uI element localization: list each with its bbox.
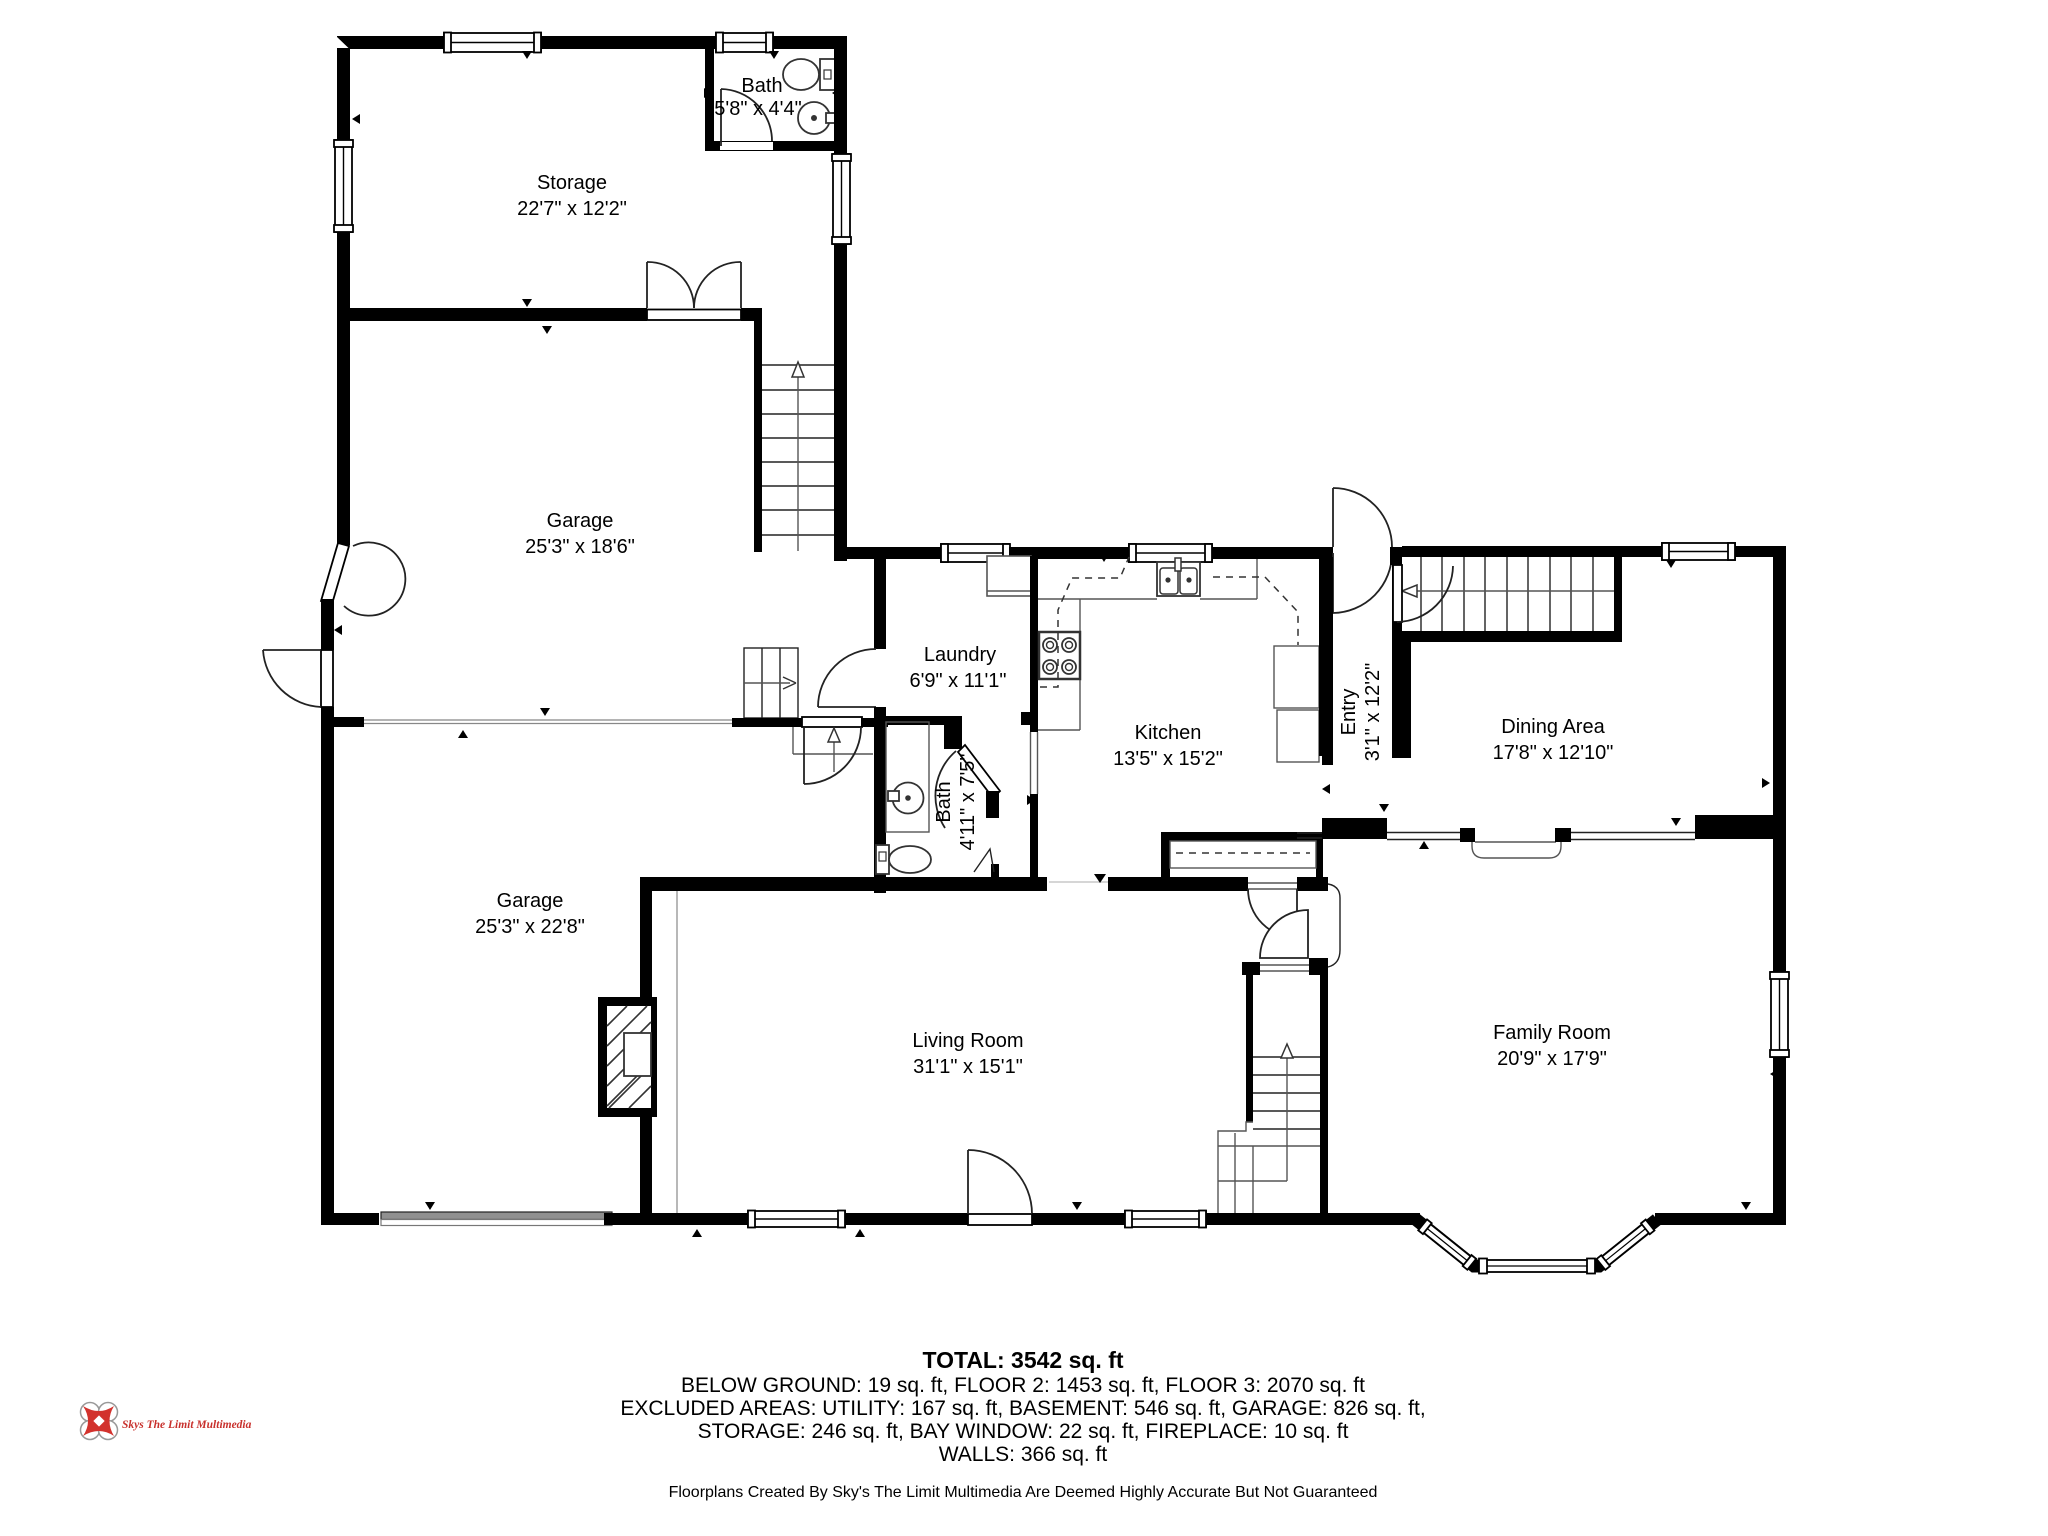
svg-text:Bath: Bath [741, 75, 782, 97]
svg-text:Entry: Entry [1338, 689, 1360, 736]
svg-text:STORAGE: 246 sq. ft, BAY WINDO: STORAGE: 246 sq. ft, BAY WINDOW: 22 sq. … [698, 1420, 1349, 1443]
svg-text:5'8" x 4'4": 5'8" x 4'4" [714, 98, 801, 120]
svg-text:BELOW GROUND: 19 sq. ft, FLOOR: BELOW GROUND: 19 sq. ft, FLOOR 2: 1453 s… [681, 1374, 1365, 1397]
svg-text:20'9" x 17'9": 20'9" x 17'9" [1497, 1048, 1607, 1070]
svg-text:22'7" x 12'2": 22'7" x 12'2" [517, 198, 627, 220]
svg-text:6'9" x 11'1": 6'9" x 11'1" [909, 670, 1006, 692]
svg-text:EXCLUDED AREAS: UTILITY: 167 s: EXCLUDED AREAS: UTILITY: 167 sq. ft, BAS… [620, 1397, 1425, 1420]
svg-text:3'1" x 12'2": 3'1" x 12'2" [1362, 663, 1384, 762]
svg-text:25'3" x 22'8": 25'3" x 22'8" [475, 916, 585, 938]
svg-text:Garage: Garage [547, 510, 614, 532]
svg-text:4'11" x 7'5": 4'11" x 7'5" [957, 753, 979, 850]
svg-text:Laundry: Laundry [924, 644, 996, 666]
svg-text:WALLS: 366 sq. ft: WALLS: 366 sq. ft [939, 1443, 1108, 1466]
svg-text:Skys The Limit Multimedia: Skys The Limit Multimedia [122, 1419, 252, 1431]
svg-text:Floorplans Created By Sky's Th: Floorplans Created By Sky's The Limit Mu… [669, 1484, 1378, 1501]
svg-text:13'5" x 15'2": 13'5" x 15'2" [1113, 748, 1223, 770]
svg-text:31'1" x 15'1": 31'1" x 15'1" [913, 1056, 1023, 1078]
svg-text:Garage: Garage [497, 890, 564, 912]
svg-text:Living Room: Living Room [912, 1030, 1023, 1052]
svg-text:Bath: Bath [933, 781, 955, 822]
svg-text:Storage: Storage [537, 172, 607, 194]
svg-text:Family Room: Family Room [1493, 1022, 1611, 1044]
svg-text:25'3" x 18'6": 25'3" x 18'6" [525, 536, 635, 558]
svg-text:17'8" x 12'10": 17'8" x 12'10" [1493, 742, 1614, 764]
svg-text:Kitchen: Kitchen [1135, 722, 1202, 744]
svg-text:TOTAL: 3542 sq. ft: TOTAL: 3542 sq. ft [922, 1347, 1123, 1373]
svg-text:Dining Area: Dining Area [1501, 716, 1605, 738]
